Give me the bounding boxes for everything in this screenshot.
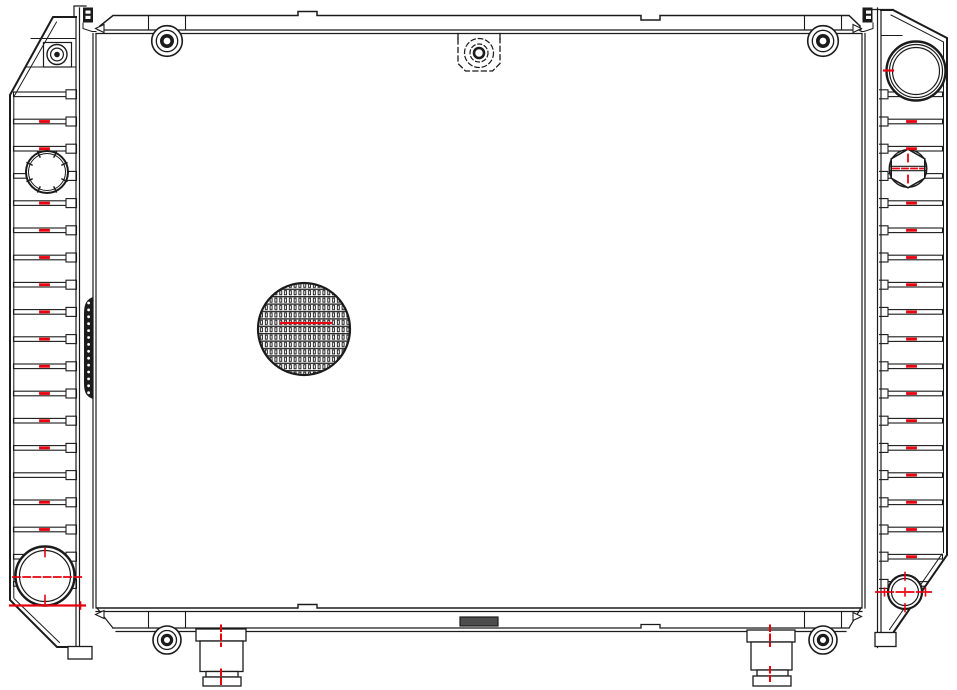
rib-tab: [66, 471, 77, 480]
seam-dot: [87, 378, 90, 381]
bottom-mounting-bracket-left: [149, 612, 186, 655]
top-mounting-bracket-right: [805, 16, 842, 57]
bottom-mounting-bracket-right: [805, 612, 842, 655]
rib-tab: [66, 90, 77, 99]
rib-tab: [878, 389, 889, 398]
rib-tab: [878, 443, 889, 452]
rib-tab: [66, 117, 77, 126]
rib-tab: [66, 335, 77, 344]
drain-tab: [460, 617, 498, 626]
right-tank-outline: [881, 10, 947, 633]
rib-band: [14, 92, 69, 97]
seam-dot: [87, 391, 90, 394]
rib-tab: [878, 90, 889, 99]
seam-strip: [84, 297, 93, 399]
tank-foot: [875, 633, 896, 647]
rib-tab: [878, 552, 889, 561]
seam-dot: [87, 343, 90, 346]
top-clip: [83, 8, 93, 23]
seam-dot: [87, 329, 90, 332]
foot-centerlines: [221, 626, 770, 685]
filler-neck: [887, 42, 946, 101]
rib-tab: [878, 579, 889, 588]
rib-tab: [878, 144, 889, 153]
top-mounting-bracket-left: [149, 16, 186, 57]
rib-tab: [878, 362, 889, 371]
seam-dot: [87, 309, 90, 312]
rib-tab: [66, 389, 77, 398]
seam-dot: [87, 322, 90, 325]
rib-tab: [66, 307, 77, 316]
rib-tab: [66, 362, 77, 371]
seam-dot: [87, 336, 90, 339]
tank-foot: [68, 647, 92, 660]
rib-tab: [878, 307, 889, 316]
left-tank: [10, 6, 96, 659]
rib-tab: [878, 253, 889, 262]
radiator-technical-drawing: [0, 0, 957, 690]
centerline-marks: [10, 71, 931, 685]
rib-tab: [66, 144, 77, 153]
seam-dot: [87, 384, 90, 387]
fin-detail-circle: [258, 283, 350, 375]
rib-tab: [878, 525, 889, 534]
drawing-canvas: [0, 0, 957, 690]
rib-tab: [878, 498, 889, 507]
rib-tab: [878, 199, 889, 208]
seam-dot: [87, 350, 90, 353]
hidden-mount-boss: [458, 34, 500, 72]
rib-tab: [878, 226, 889, 235]
rib-tab: [66, 525, 77, 534]
seam-dot: [87, 371, 90, 374]
rib-tab: [66, 226, 77, 235]
rib-tab: [66, 443, 77, 452]
line-art: [10, 6, 947, 686]
right-tank: [861, 8, 947, 648]
rib-tab: [66, 199, 77, 208]
rib-band: [14, 473, 69, 478]
seam-dot: [87, 357, 90, 360]
rib-tab: [66, 416, 77, 425]
bottom-rail: [96, 605, 863, 632]
rib-tab: [66, 280, 77, 289]
rib-tab: [878, 280, 889, 289]
rib-tab: [66, 253, 77, 262]
rib-tab: [878, 335, 889, 344]
rib-tab: [878, 416, 889, 425]
cap-opening: [26, 151, 68, 193]
seam-dot: [87, 302, 90, 305]
radiator-core: [93, 34, 865, 609]
top-clip: [863, 8, 873, 23]
rib-tab: [878, 171, 889, 180]
rib-tab: [878, 117, 889, 126]
top-rail: [96, 12, 863, 34]
seam-dot: [87, 315, 90, 318]
rib-tab: [878, 471, 889, 480]
rib-tab: [66, 498, 77, 507]
seam-dot: [87, 364, 90, 367]
